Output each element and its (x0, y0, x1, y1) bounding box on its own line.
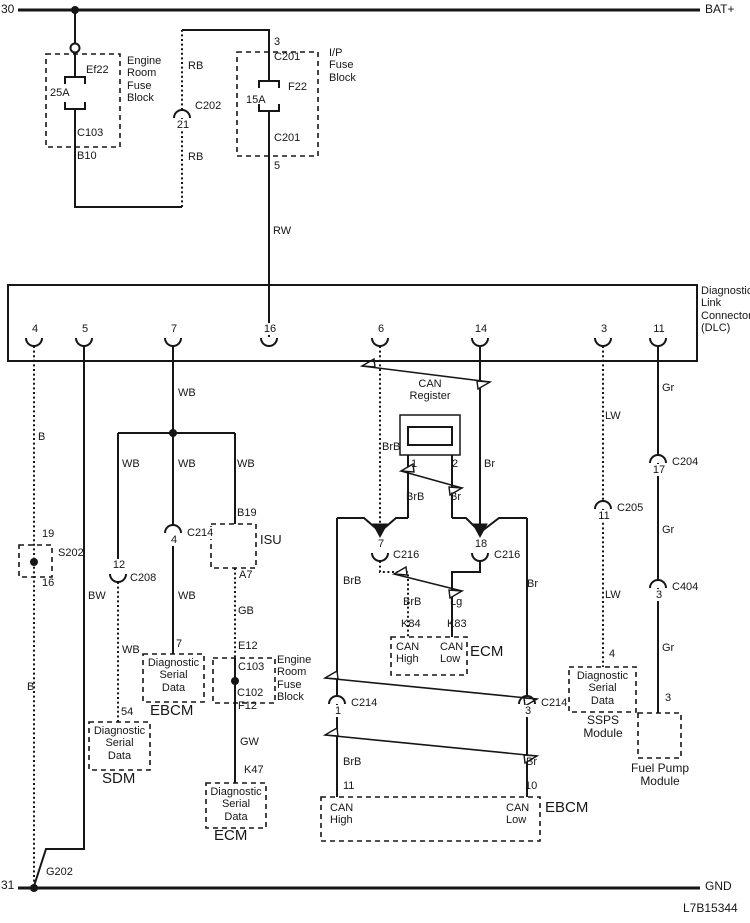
label-wire-wb-2: WB (122, 458, 140, 470)
pin-number-conn-c204: 17 (648, 464, 670, 476)
label-pin-k83: K83 (447, 618, 467, 630)
pin-number-conn-c205: 11 (593, 510, 615, 522)
label-wire-brb-3: BrB (343, 575, 361, 587)
label-terminal-31: 31 (1, 879, 14, 892)
label-wire-gr-1: Gr (662, 382, 674, 394)
label-engine-room-fuse-block-1: Engine Room Fuse Block (127, 55, 161, 104)
label-ecm-can-low: CAN Low (440, 641, 463, 666)
label-conn-c102: C102 (237, 687, 263, 699)
label-pin-k84: K84 (401, 618, 421, 630)
label-wire-brb-5: BrB (343, 756, 361, 768)
label-wire-rb-upper: RB (188, 60, 203, 72)
label-pin-3-fuel: 3 (665, 692, 671, 704)
label-wire-wb-1: WB (178, 387, 196, 399)
label-pin-4-ssps: 4 (609, 648, 615, 660)
label-pin-b10: B10 (77, 150, 97, 162)
label-wire-gr-2: Gr (662, 524, 674, 536)
connector-label-conn-c208: C208 (129, 572, 157, 584)
label-pin-k47: K47 (244, 764, 264, 776)
label-module-ecm-1: ECM (214, 828, 247, 845)
label-can-register: CAN Register (398, 378, 462, 403)
label-pin-19: 19 (42, 528, 54, 540)
pin-number-conn-c214-mid: 4 (163, 534, 185, 546)
label-dsd-sdm: Diagnostic Serial Data (89, 725, 150, 762)
label-fuse-ef22-rating: 25A (50, 87, 70, 99)
label-wire-wb-4: WB (237, 458, 255, 470)
label-ip-fuse-block: I/P Fuse Block (329, 47, 356, 84)
label-doc-number: L7B15344 (683, 902, 738, 915)
label-module-fuel-pump: Fuel Pump Module (618, 762, 702, 789)
label-wire-rb-lower: RB (188, 151, 203, 163)
pin-number-conn-c208: 12 (108, 559, 130, 571)
label-wire-rw: RW (273, 225, 291, 237)
label-engine-room-fuse-block-2: Engine Room Fuse Block (277, 654, 311, 703)
label-pin-a7: A7 (239, 569, 252, 581)
label-module-ssps: SSPS Module (573, 714, 633, 741)
connector-label-conn-c214-mid: C214 (186, 527, 214, 539)
label-ecm-can-high: CAN High (396, 641, 419, 666)
label-dsd-ssps: Diagnostic Serial Data (569, 670, 636, 707)
connector-label-conn-c214-bottom-right: C214 (540, 697, 568, 709)
label-wire-brb-2: BrB (406, 491, 424, 503)
label-gnd: GND (705, 880, 732, 893)
label-pin-e12: E12 (238, 640, 258, 652)
label-terminal-30: 30 (1, 3, 14, 16)
connector-label-conn-c404: C404 (671, 581, 699, 593)
pin-number-dlc-pin-4: 4 (24, 323, 46, 335)
label-wire-brb-1: BrB (382, 441, 400, 453)
label-module-ebcm-1: EBCM (150, 703, 193, 720)
label-pin-3-ipfb: 3 (274, 36, 280, 48)
label-bat-plus: BAT+ (705, 3, 734, 16)
pin-number-conn-c404: 3 (648, 589, 670, 601)
label-wire-br-1: Br (484, 458, 495, 470)
label-conn-c201-top: C201 (274, 51, 300, 63)
connector-label-conn-c205: C205 (616, 502, 644, 514)
label-splice-s202: S202 (58, 547, 84, 559)
label-fuse-ef22-name: Ef22 (86, 64, 109, 76)
pin-number-dlc-pin-3: 3 (593, 323, 615, 335)
label-fuse-f22-rating: 15A (246, 94, 266, 106)
label-pin-11-ebcm: 11 (343, 780, 354, 792)
label-reg-pin-1: 1 (411, 458, 417, 470)
label-pin-f12: F12 (238, 700, 257, 712)
label-pin-b19: B19 (237, 507, 257, 519)
label-wire-gb: GB (238, 605, 254, 617)
pin-number-conn-c202: 21 (172, 119, 194, 131)
label-conn-c103-top: C103 (77, 127, 103, 139)
connector-label-conn-c216-right: C216 (493, 549, 521, 561)
wiring-diagram: 30BAT+Ef2225AC103B10Engine Room Fuse Blo… (0, 0, 750, 923)
label-dsd-ebcm: Diagnostic Serial Data (143, 657, 204, 694)
label-module-sdm: SDM (102, 771, 135, 788)
label-dlc-title: Diagnostic Link Connector (DLC) (701, 285, 750, 334)
label-wire-lw-1: LW (605, 410, 621, 422)
label-fuse-f22-name: F22 (288, 81, 307, 93)
label-module-ecm-2: ECM (470, 644, 503, 661)
connector-label-conn-c204: C204 (671, 456, 699, 468)
label-pin-54: 54 (121, 706, 133, 718)
label-wire-wb-6: WB (122, 644, 140, 656)
label-wire-bw: BW (88, 590, 106, 602)
pin-number-conn-c214-bottom-right: 3 (517, 705, 539, 717)
connector-label-conn-c202: C202 (194, 100, 222, 112)
pin-number-dlc-pin-6: 6 (370, 323, 392, 335)
connector-label-conn-c216-left: C216 (392, 549, 420, 561)
pin-number-dlc-pin-16: 16 (259, 323, 281, 335)
pin-number-dlc-pin-7: 7 (163, 323, 185, 335)
pin-number-dlc-pin-5: 5 (74, 323, 96, 335)
label-pin-16-splice: 16 (42, 577, 54, 589)
label-wire-brb-4: BrB (403, 596, 421, 608)
label-wire-gw: GW (240, 736, 259, 748)
label-wire-gr-3: Gr (662, 642, 674, 654)
label-ebcm-can-high: CAN High (330, 802, 353, 827)
label-wire-wb-5: WB (178, 590, 196, 602)
pin-number-conn-c216-left: 7 (370, 538, 392, 550)
label-conn-c201-bottom: C201 (274, 132, 300, 144)
label-wire-wb-3: WB (178, 458, 196, 470)
label-wire-lg: Lg (450, 596, 462, 608)
label-pin-7-ebcm: 7 (176, 638, 182, 650)
labels-layer: 30BAT+Ef2225AC103B10Engine Room Fuse Blo… (0, 0, 750, 923)
label-wire-lw-2: LW (605, 589, 621, 601)
label-module-ebcm-2: EBCM (545, 800, 588, 817)
label-wire-b-1: B (38, 431, 45, 443)
label-ebcm-can-low: CAN Low (506, 802, 529, 827)
label-module-isu: ISU (260, 533, 282, 548)
label-wire-br-2: Br (450, 491, 461, 503)
label-wire-b-2: B (27, 681, 34, 693)
label-ground-g202: G202 (46, 866, 73, 878)
label-wire-br-3: Br (527, 578, 538, 590)
connector-label-conn-c214-bottom-left: C214 (350, 697, 378, 709)
pin-number-dlc-pin-14: 14 (470, 323, 492, 335)
label-pin-5-ipfb: 5 (274, 160, 280, 172)
label-reg-pin-2: 2 (452, 458, 458, 470)
pin-number-conn-c216-right: 18 (470, 538, 492, 550)
label-conn-c103: C103 (238, 661, 264, 673)
label-pin-10-ebcm: 10 (525, 780, 537, 792)
label-dsd-ecm: Diagnostic Serial Data (206, 786, 266, 823)
label-wire-br-4: Br (526, 756, 537, 768)
pin-number-conn-c214-bottom-left: 1 (327, 705, 349, 717)
pin-number-dlc-pin-11: 11 (648, 323, 670, 335)
